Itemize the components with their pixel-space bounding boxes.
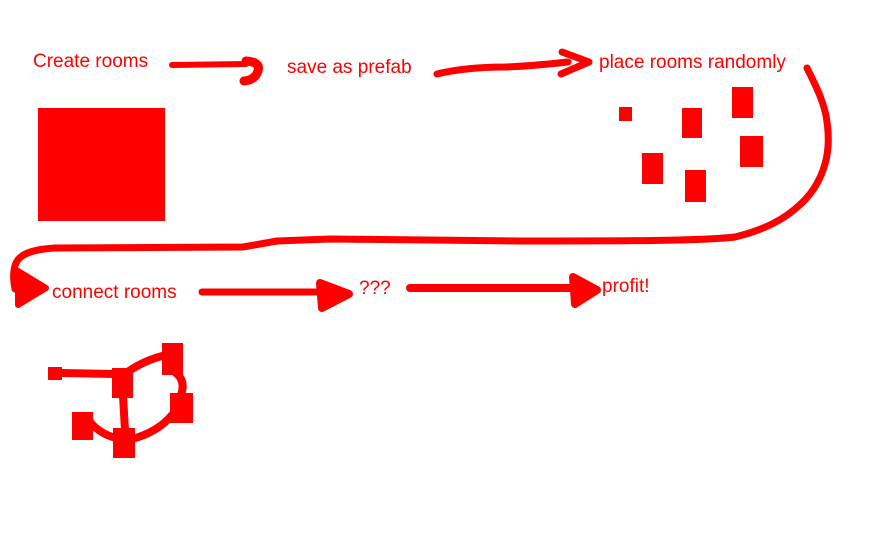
graph-node [170,393,193,423]
graph-node [72,412,93,440]
scattered-rooms-group [619,87,763,202]
arrow-save-to-place-shaft [437,62,568,74]
room-square [732,87,753,118]
graph-edge [123,396,125,430]
big-room-group [38,108,165,221]
graph-node [112,368,133,398]
arrow-unknown-to-profit-head [573,277,597,304]
room-square [642,153,663,184]
loop-arrowhead [18,271,46,305]
room-square [619,107,632,121]
arrow-create-to-save-head [244,61,259,81]
graph-node [48,367,62,380]
big-room-square [38,108,165,221]
graph-edge [62,373,114,374]
graph-edge [129,355,166,371]
graph-edge [90,422,116,438]
room-square [682,108,702,138]
label-connect-rooms: connect rooms [52,282,177,304]
paint-drawing-canvas: Create rooms save as prefab place rooms … [0,0,873,559]
arrow-connect-to-unknown-head [320,283,349,308]
graph-node [162,343,183,375]
sketch-layer [0,0,873,559]
arrow-create-to-save-shaft [172,64,246,65]
label-save-as-prefab: save as prefab [287,57,412,79]
room-square [740,136,763,167]
label-place-rooms-randomly: place rooms randomly [599,52,786,74]
label-create-rooms: Create rooms [33,51,148,73]
graph-edge [132,415,172,439]
graph-node [113,428,135,458]
graph-edge [176,373,183,395]
label-unknown-step: ??? [359,278,391,300]
room-square [685,170,706,202]
label-profit: profit! [602,276,650,298]
